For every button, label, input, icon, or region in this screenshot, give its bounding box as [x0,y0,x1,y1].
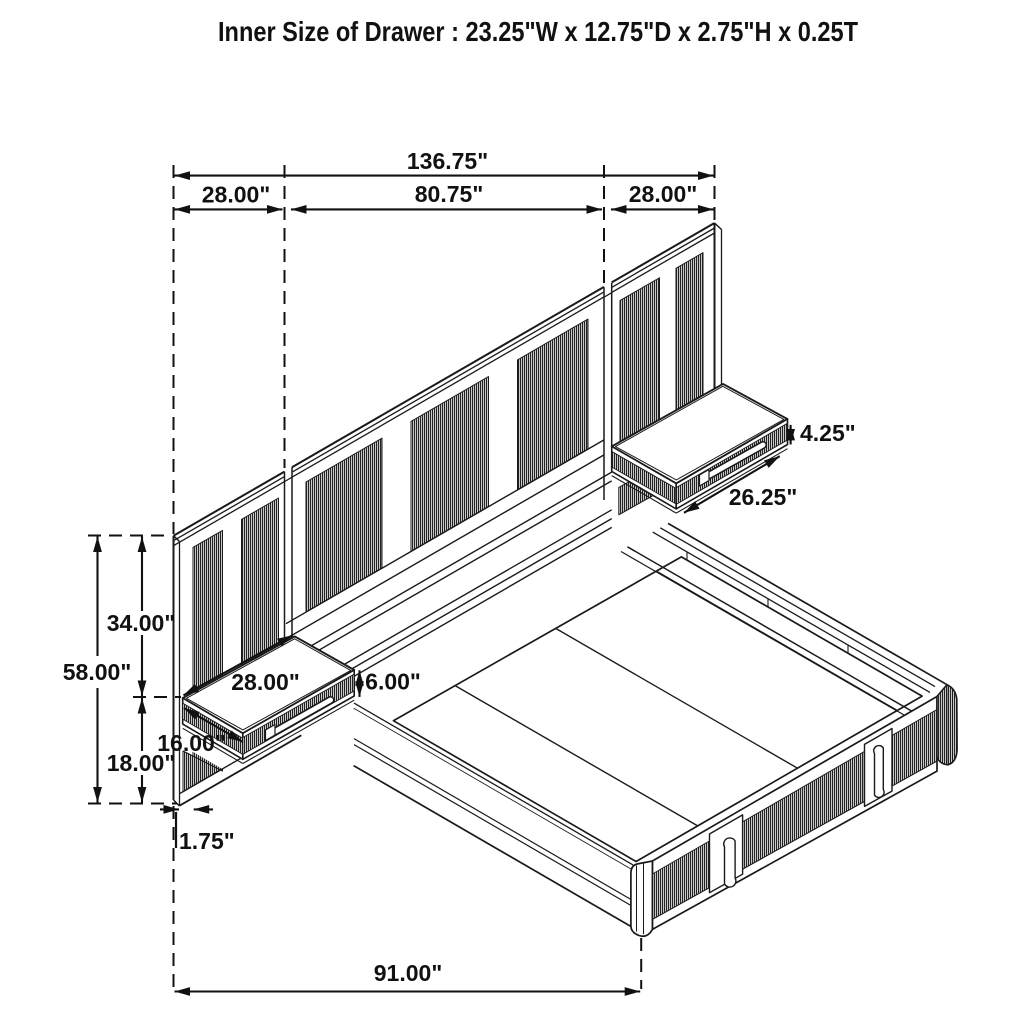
svg-text:28.00": 28.00" [231,669,299,695]
svg-text:28.00": 28.00" [629,181,697,207]
svg-text:1.75": 1.75" [179,828,235,854]
svg-text:91.00": 91.00" [374,960,442,986]
svg-text:6.00": 6.00" [365,669,421,695]
svg-text:4.25": 4.25" [800,420,856,446]
svg-text:Inner Size of Drawer : 23.25"W: Inner Size of Drawer : 23.25"W x 12.75"D… [218,16,858,47]
svg-text:16.00": 16.00" [157,730,225,756]
svg-text:34.00": 34.00" [107,610,175,636]
svg-text:28.00": 28.00" [202,182,270,208]
svg-text:136.75": 136.75" [407,148,488,174]
svg-text:80.75": 80.75" [415,181,483,207]
svg-text:58.00": 58.00" [63,659,131,685]
svg-text:26.25": 26.25" [729,484,797,510]
